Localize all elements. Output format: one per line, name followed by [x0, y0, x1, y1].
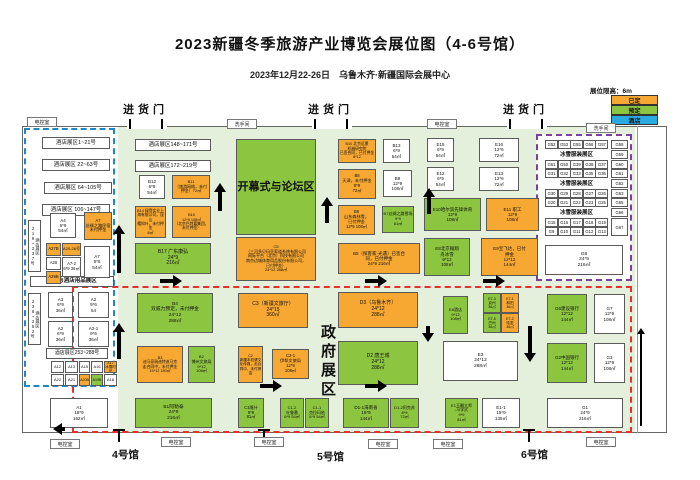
arrow-head — [637, 328, 645, 334]
booth-G65: G65 — [611, 198, 628, 207]
arrow-shaft — [218, 191, 222, 211]
booth-A20B: A20B — [79, 374, 90, 386]
booth-A28: A28 — [46, 257, 61, 270]
booth-label: 216㎡ — [167, 416, 180, 422]
booth-label: 135㎡ — [495, 416, 507, 421]
control-room-box: 电控室 — [254, 437, 284, 447]
booth-label: 海有限公司，昆山 — [136, 213, 165, 222]
booth-A2-a: A29*654 — [78, 292, 109, 318]
arrow-head — [524, 353, 536, 362]
booth-B2: B2博州文旅局9*12108㎡ — [188, 346, 215, 383]
booth-label: 酒店展区172~219号 — [148, 163, 197, 169]
booth-E7-2: E7-2哈密36㎡ — [501, 313, 519, 333]
booth-A21: A21 — [65, 374, 78, 386]
gate-door-mark — [541, 119, 543, 129]
arrow-shaft — [260, 384, 274, 388]
booth-label: 酒店展区253~288号 — [55, 351, 100, 357]
arrow-head — [378, 275, 387, 287]
arrow-head — [214, 183, 226, 192]
booth-label: 72㎡ — [494, 182, 504, 187]
booth-G28: G28 — [570, 189, 583, 198]
control-room-box: 电控室 — [586, 437, 616, 447]
control-room-box: 电控室 — [161, 437, 191, 447]
booth-label: 8㎡ — [148, 231, 154, 235]
booth-hotel-172-219: 酒店展区172~219号 — [135, 160, 211, 172]
booth-label: A20-26号 — [63, 247, 80, 252]
booth-label: 144㎡ — [360, 416, 372, 421]
booth-A27B: A27B — [46, 243, 61, 256]
booth-A16: A16 — [91, 361, 103, 373]
direction-arrow-up — [113, 323, 125, 359]
booth-G13: G13 — [595, 227, 608, 236]
arrow-head — [378, 380, 387, 392]
booth-label: 72㎡ — [494, 153, 504, 158]
booth-label: A28 — [50, 261, 57, 266]
legend-height-note: 展位限高：6m — [590, 85, 632, 95]
bottom-door-mark — [113, 429, 125, 431]
arrow-head — [321, 197, 333, 206]
direction-arrow-up — [321, 197, 333, 223]
booth-label: 216㎡ — [578, 263, 591, 269]
government-zone-label: 政府展区 — [316, 324, 338, 400]
booth-label: 酒店展区238~252号 — [30, 294, 40, 344]
booth-B4: B4双威力预定，未付押金24*12288㎡ — [137, 293, 213, 333]
direction-arrow-up — [214, 183, 226, 211]
booth-G30: G30 — [545, 189, 558, 198]
booth-G6: G6建设银行12*12144㎡ — [547, 294, 587, 334]
booth-label: 108㎡ — [603, 317, 615, 322]
direction-arrow-up — [637, 328, 645, 426]
booth-B15: B1512*9 108㎡（北京巴特嘉集团，未付押金） — [172, 206, 211, 238]
booth-label: 108㎡ — [506, 217, 518, 222]
gate-label-3: 进货门 — [503, 101, 548, 117]
booth-G2: G2中国银行12*12144㎡ — [547, 343, 587, 383]
booth-G52: G52 — [545, 140, 558, 149]
booth-B17: B17 广东康弘24*9216㎡ — [135, 243, 211, 274]
direction-arrow-right — [160, 275, 182, 287]
booth-label: 酒店展区219~237号 — [30, 221, 40, 271]
gate-door-mark — [129, 119, 131, 129]
booth-G50: G50 — [558, 160, 571, 169]
control-room-box: 电控室 — [427, 119, 457, 129]
booth-label: A19B — [93, 378, 102, 382]
booth-label: 108㎡ — [196, 369, 207, 374]
booth-label: 108㎡ — [391, 186, 403, 191]
booth-label: A12 — [54, 365, 61, 370]
booth-D1-1: D1-1海南省16*9144㎡ — [343, 398, 389, 428]
booth-label: 144㎡ — [503, 262, 515, 267]
booth-G51: G51 — [545, 160, 558, 169]
booth-G27: G27 — [583, 189, 596, 198]
booth-E1: E1玉雕大师-马学武9*981㎡ — [445, 398, 478, 428]
booth-G66: G66 — [611, 208, 628, 217]
direction-arrow-down — [524, 326, 536, 362]
booth-G18: G18 — [583, 218, 596, 227]
booth-label: 81㎡ — [247, 415, 256, 420]
booth-label: 108㎡ — [446, 217, 458, 222]
booth-C2: C2新疆本初健文化传媒，走合同中，未付押金 — [238, 346, 263, 383]
booth-E15: E156*954㎡ — [427, 138, 454, 162]
booth-E16: E1612*672㎡ — [479, 138, 519, 162]
booth-hotel-238-252: 酒店展区238~252号 — [28, 293, 41, 345]
booth-G19: G19 — [595, 218, 608, 227]
direction-arrow-down — [422, 326, 434, 342]
direction-arrow-right — [483, 275, 505, 287]
booth-label: 6*9 54㎡ — [309, 415, 325, 420]
booth-hotel-219-237: 酒店展区219~237号 — [28, 220, 41, 272]
booth-label: 108㎡ — [285, 369, 296, 374]
booth-G17: G17 — [570, 218, 583, 227]
booth-label: 54㎡ — [436, 153, 446, 158]
booth-A7-free: A79*654㎡ — [84, 246, 110, 278]
booth-label: 288㎡ — [169, 319, 182, 325]
arrow-head — [273, 380, 282, 392]
booth-C1-2: C1-2吐鲁番6*9 54㎡ — [280, 398, 304, 428]
booth-label: A21 — [68, 378, 75, 383]
booth-G3: G312*9108㎡ — [594, 343, 625, 383]
booth-label: 54㎡ — [392, 154, 402, 159]
booth-label: 216㎡ — [166, 261, 179, 267]
booth-label: 未付押金） — [182, 226, 201, 230]
booth-hotel-64-105: 酒店展区 64~105号 — [44, 182, 112, 194]
booth-G26: G26 — [595, 189, 608, 198]
booth-label: 54㎡ — [58, 228, 68, 233]
booth-C1: C1喀什9*981㎡ — [238, 398, 264, 428]
booth-B3: B3迪马豪瑞迪特迪马克走合同中，未付押金15*12 180㎡ — [137, 346, 183, 383]
booth-G63: G63 — [611, 189, 628, 198]
booth-C5: C5（三河多贝玛亚索道系统有限公司网际平台（北京）科技有限公司南京边城体育用品股… — [236, 237, 316, 281]
booth-C3: C3（新疆文旅厅）24*15360㎡ — [238, 293, 308, 328]
booth-A2-b: A26*936㎡ — [48, 321, 73, 347]
booth-label: 36㎡ — [506, 325, 514, 329]
booth-G37: G37 — [595, 160, 608, 169]
arrow-head — [113, 225, 125, 234]
direction-arrow-up — [113, 225, 125, 273]
booth-A19B: A19B — [91, 374, 103, 386]
booth-G55: G55 — [570, 140, 583, 149]
booth-G21: G21 — [558, 198, 571, 207]
booth-label: 288㎡ — [371, 313, 384, 319]
booth-label: A22 — [54, 378, 61, 383]
booth-label: 54 — [91, 308, 96, 313]
arrow-head — [423, 188, 435, 197]
booth-label: 酒店展区148~171号 — [148, 142, 197, 148]
control-room-box: 电控室 — [433, 439, 463, 449]
legend-item-1: 已定 — [611, 95, 658, 105]
booth-label: 24*12 288㎡ — [265, 268, 287, 273]
booth-label: 24*9 216㎡ — [368, 261, 391, 266]
booth-E7-1: E7-1和田36㎡ — [501, 293, 519, 313]
booth-B10: B10 北京远景机械研究院已签合同，已付押金8*12 — [338, 139, 376, 163]
booth-A12: A12 — [51, 361, 64, 373]
direction-arrow-right — [365, 380, 387, 392]
booth-G53: G53 — [558, 140, 571, 149]
booth-label: 144㎡ — [561, 317, 573, 322]
booth-D2: D2 唐王城24*12288㎡ — [338, 341, 418, 385]
booth-label: 樱知叶，未付押金 — [136, 222, 165, 231]
booth-label: A20B — [80, 378, 89, 382]
booth-label: 72㎡ — [400, 415, 408, 420]
arrow-head — [113, 323, 125, 332]
booth-label: 54㎡ — [436, 182, 446, 187]
booth-label: 未付押金 — [90, 228, 107, 233]
booth-label: 6*9 54㎡ — [284, 415, 300, 420]
booth-hotel-253-288: 酒店展区253~288号 — [46, 348, 108, 359]
booth-G39: G39 — [570, 160, 583, 169]
booth-A2-1: A2-19*636㎡ — [78, 321, 109, 347]
booth-G11: G11 — [570, 227, 583, 236]
booth-label: 108㎡ — [441, 262, 453, 267]
arrow-head — [173, 275, 182, 287]
page-title: 2023新疆冬季旅游产业博览会展位图（4-6号馆） — [0, 33, 700, 54]
booth-label: 108㎡ — [603, 366, 615, 371]
booth-label: 108㎡ — [450, 317, 461, 322]
booth-G58: G58 — [611, 140, 628, 149]
gate-label-1: 进货门 — [123, 101, 168, 117]
booth-label: 金 — [249, 371, 253, 375]
booth-label: 144㎡ — [561, 366, 573, 371]
booth-G9: G9 — [545, 227, 558, 236]
booth-D3: D3（乌鲁木齐）24*12288㎡ — [338, 292, 418, 328]
booth-hotel-1-21: 酒店展区1~21号 — [42, 137, 110, 149]
restroom-box: 洗手间 — [227, 119, 257, 129]
gate-door-mark — [346, 119, 348, 129]
booth-B12: B126*954㎡ — [139, 175, 165, 199]
booth-B6: B6山东森林雪，已付押金12*9 108㎡ — [338, 205, 375, 235]
arrow-head — [422, 333, 434, 342]
booth-G60: G60 — [611, 160, 628, 169]
booth-A18: A18 — [104, 374, 117, 386]
booth-E8: E8北京翰翔舟冰雪9*12108㎡ — [424, 238, 470, 276]
booth-label: 8*12 — [353, 155, 361, 159]
booth-G35: G35 — [583, 169, 596, 178]
booth-label: 81㎡ — [394, 222, 402, 227]
booth-G8: G824*9216㎡ — [545, 245, 623, 275]
booth-label: 36㎡ — [89, 337, 99, 342]
booth-label: A15 — [81, 365, 88, 370]
booth-B11-booked: B11（旅游网络，未付押金）72㎡ — [172, 175, 210, 199]
booth-label: 15*12 180㎡ — [149, 369, 170, 373]
booth-G59: G59 — [611, 150, 628, 159]
booth-A7-booked: A7丝绸之路民宿未付押金 — [84, 212, 112, 240]
control-room-box: 电控室 — [50, 439, 80, 449]
booth-G62: G62 — [611, 179, 628, 188]
gate-door-mark — [314, 119, 316, 129]
booth-D1-2: D1-2阿克苏8*972㎡ — [390, 398, 419, 428]
booth-G15: G15 — [545, 218, 558, 227]
booth-label: 360㎡ — [266, 313, 279, 319]
booth-G10: G10 — [558, 227, 571, 236]
booth-C1-1: C1-1克拉玛依6*9 54㎡ — [305, 398, 329, 428]
ice-zone-label: 冰雪服装展区 — [545, 150, 608, 158]
gate-label-2: 进货门 — [308, 101, 353, 117]
booth-A15: A15 — [79, 361, 90, 373]
booth-label: 288㎡ — [371, 366, 384, 372]
booth-label: A13 — [68, 365, 75, 370]
restroom-box: 洗手间 — [586, 123, 616, 133]
booth-E6: E6酒店9*12108㎡ — [443, 296, 468, 334]
gate-door-mark — [509, 119, 511, 129]
booth-label: 36㎡ — [56, 308, 66, 313]
booth-G20: G20 — [545, 198, 558, 207]
booth-label: A18 — [107, 378, 114, 383]
arrow-shaft — [365, 279, 379, 283]
booth-B13: B136*954㎡ — [383, 139, 410, 163]
direction-arrow-right — [260, 380, 282, 392]
booth-label: 72㎡ — [353, 189, 362, 194]
booth-label: 酒店展区1~21号 — [56, 140, 96, 146]
booth-G1: G124*9216㎡ — [547, 398, 623, 428]
booth-label: 81㎡ — [457, 418, 465, 423]
booth-A3: A36*936㎡ — [48, 292, 73, 318]
booth-G32: G32 — [558, 169, 571, 178]
hall-label-6: 6号馆 — [521, 447, 548, 462]
booth-G7: G712*9108㎡ — [594, 294, 625, 334]
booth-B14: B14 绿登实业上海有限公司，昆山樱知叶，未付押金8㎡ — [135, 206, 166, 238]
direction-arrow-right — [365, 275, 387, 287]
arrow-head — [53, 423, 62, 435]
booth-B7: B7丝绸之路雪场9*981㎡ — [382, 206, 414, 233]
legend-item-2: 预定 — [611, 105, 658, 115]
booth-A13: A13 — [65, 361, 78, 373]
gate-door-mark — [161, 119, 163, 129]
booth-label: 216㎡ — [579, 416, 591, 421]
booth-B9: B912*9108㎡ — [383, 170, 412, 197]
booth-B5: B5（探客家·光遇）已签合同，已付押金24*9 216㎡ — [338, 243, 420, 274]
arrow-shaft — [117, 331, 121, 359]
ice-zone-label: 冰雪服装展区 — [545, 179, 608, 187]
booth-A22: A22 — [51, 374, 64, 386]
booth-A20-26: A20-26号 — [62, 243, 81, 256]
bottom-door-mark — [258, 429, 270, 431]
booth-E3: E324*12288㎡ — [443, 341, 518, 381]
control-room-box: 电控室 — [27, 117, 57, 127]
booth-label: 冰雪时光 — [105, 365, 116, 373]
booth-label: 54㎡ — [147, 190, 157, 195]
booth-G57: G57 — [595, 140, 608, 149]
booth-G38: G38 — [583, 160, 596, 169]
booth-label: 6*9 36㎡ — [63, 267, 79, 272]
arrow-shaft — [117, 233, 121, 273]
booth-hotel-22-63: 酒店展区 22~63号 — [42, 159, 110, 171]
booth-label: 36㎡ — [506, 305, 514, 309]
booth-E7-5: E7-5巴州36㎡ — [483, 313, 501, 333]
booth-label: 酒店展区 22~63号 — [54, 162, 98, 168]
booth-hotel-148-171: 酒店展区148~171号 — [135, 139, 211, 151]
arrow-shaft — [160, 279, 174, 283]
booth-label: 酒店展区 64~105号 — [54, 185, 102, 191]
booth-G61: G61 — [611, 169, 628, 178]
direction-arrow-left — [53, 423, 65, 435]
booth-A4: A46*954㎡ — [50, 213, 76, 238]
bottom-door-mark — [118, 429, 120, 442]
booth-G67: G67 — [611, 218, 628, 236]
booth-label: A29B — [48, 275, 58, 280]
arrow-head — [496, 275, 505, 287]
booth-G25: G25 — [595, 198, 608, 207]
arrow-shaft — [528, 326, 532, 354]
booth-label: 押金）72㎡ — [181, 189, 201, 194]
booth-label: A16 — [93, 365, 100, 370]
booth-E13: E1312*672㎡ — [479, 167, 519, 191]
booth-G33: G33 — [570, 169, 583, 178]
booth-G36: G36 — [595, 169, 608, 178]
booth-E11: E11 职工12*9108㎡ — [486, 198, 539, 231]
booth-label: 12*9 108㎡ — [346, 225, 367, 230]
legend-item-3: 酒店 — [611, 115, 658, 125]
booth-label: 36㎡ — [488, 305, 496, 309]
booth-label: 288㎡ — [474, 364, 487, 370]
booth-E7-3: E7-3克州36㎡ — [483, 293, 501, 313]
arrow-shaft — [427, 196, 431, 214]
exhibition-floorplan: 2023新疆冬季旅游产业博览会展位图（4-6号馆） 2023年12月22-26日… — [0, 0, 700, 480]
control-room-box: 电控室 — [368, 439, 398, 449]
bottom-door-mark — [528, 429, 530, 442]
page-subtitle: 2023年12月22-26日 乌鲁木齐·新疆国际会展中心 — [0, 68, 700, 81]
booth-E1-1: E1-115*9135㎡ — [482, 398, 520, 428]
booth-A7-2: A7-26*9 36㎡ — [62, 257, 81, 277]
booth-G12: G12 — [583, 227, 596, 236]
booth-label: 36㎡ — [56, 337, 66, 342]
booth-label: 开幕式与论坛区 — [238, 181, 315, 194]
booth-B1: B1阿勒泰24*9216㎡ — [135, 398, 212, 428]
booth-label: A27B — [48, 247, 58, 252]
booth-G29: G29 — [558, 189, 571, 198]
booth-B8: B8天津，未付押金8*972㎡ — [338, 169, 376, 199]
bottom-door-mark — [523, 429, 535, 431]
arrow-shaft — [325, 205, 329, 223]
direction-arrow-up — [423, 188, 435, 214]
booth-G56: G56 — [583, 140, 596, 149]
ice-zone-label: 冰雪服装展区 — [545, 208, 608, 216]
booth-G23: G23 — [583, 198, 596, 207]
booth-G16: G16 — [558, 218, 571, 227]
booth-G22: G22 — [570, 198, 583, 207]
arrow-shaft — [640, 333, 642, 426]
booth-A29B: A29B — [46, 271, 61, 284]
arrow-shaft — [483, 279, 497, 283]
booth-A17: A17冰雪时光 — [104, 361, 117, 373]
hall-label-4: 4号馆 — [112, 447, 139, 462]
booth-E9: E9宝飞达，已付押金12*12144㎡ — [481, 238, 538, 276]
booth-C2-1: C2-1伊犁文旅局12*9108㎡ — [272, 349, 309, 379]
booth-label: 162㎡ — [73, 416, 85, 421]
booth-label: 36㎡ — [488, 325, 496, 329]
booth-G31: G31 — [545, 169, 558, 178]
booth-label: 54㎡ — [92, 265, 102, 270]
arrow-shaft — [365, 384, 379, 388]
booth-forum-area: 开幕式与论坛区 — [236, 139, 316, 235]
hall-label-5: 5号馆 — [317, 449, 344, 464]
